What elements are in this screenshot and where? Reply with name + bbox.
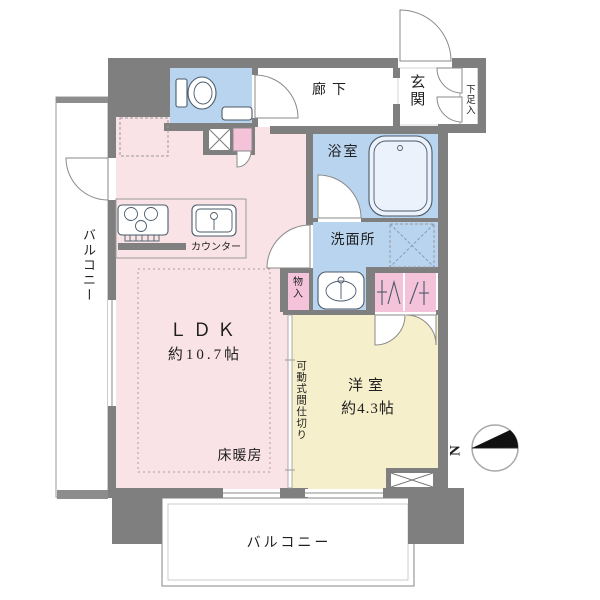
hallway-label: 廊下 — [302, 83, 362, 99]
balcony-left-label: バルコニー — [80, 228, 95, 348]
western-room-size-label: 約4.3帖 — [320, 401, 416, 418]
storage-label: 物入 — [290, 276, 302, 310]
bathtub-icon — [369, 136, 432, 216]
compass-icon — [472, 425, 518, 471]
compass-north-label: N — [447, 442, 464, 460]
entry-door-arc — [400, 10, 451, 61]
floor-heating-label: 床暖房 — [195, 449, 285, 465]
floorplan: ＬＤＫ 約10.7帖 床暖房 カウンター 洋室 約4.3帖 可動式間仕切り 廊下… — [0, 0, 600, 600]
bathroom-label: 浴室 — [316, 145, 371, 161]
ldk-label: ＬＤＫ — [150, 320, 260, 341]
ldk-size-label: 約10.7帖 — [140, 347, 270, 364]
entrance-label: 玄関 — [407, 74, 424, 124]
sink-icon — [192, 205, 236, 236]
balcony-door-arc — [66, 158, 108, 200]
washbasin-icon — [318, 272, 364, 309]
movable-partition-label: 可動式間仕切り — [294, 360, 306, 484]
utility-box — [233, 128, 252, 151]
counter-label: カウンター — [186, 242, 246, 254]
shoe-cabinet-label: 下足入 — [463, 84, 474, 126]
western-room-label: 洋室 — [330, 378, 406, 395]
washroom-label: 洗面所 — [318, 233, 388, 249]
closet-area — [375, 270, 436, 312]
counter-bar — [118, 243, 186, 250]
balcony-bottom-label: バルコニー — [230, 536, 348, 552]
